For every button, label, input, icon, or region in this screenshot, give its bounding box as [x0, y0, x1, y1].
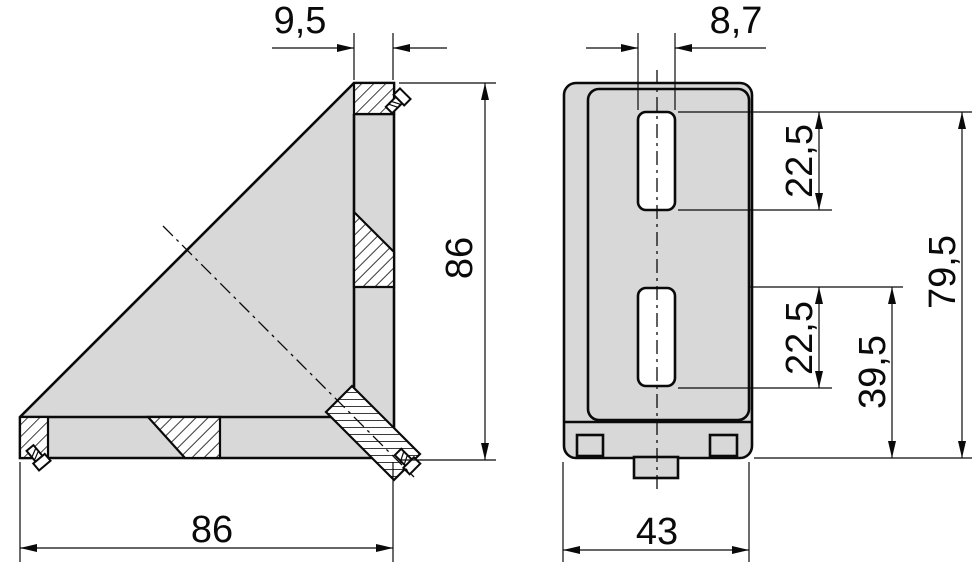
- arrowhead: [337, 44, 354, 52]
- arrowhead: [888, 287, 896, 304]
- dim-label-side-width: 86: [191, 509, 233, 551]
- arrowhead: [675, 44, 692, 52]
- dim-label-front-width: 43: [636, 511, 678, 553]
- dim-label-side-leg-thickness: 9,5: [274, 0, 327, 42]
- front-view: 8,7 22,5 22,5 39,5: [563, 0, 972, 562]
- arrowhead: [888, 441, 896, 458]
- arrowhead: [481, 83, 489, 100]
- arrowhead: [732, 546, 749, 554]
- dim-label-front-bottom-slot-length: 22,5: [779, 301, 821, 375]
- drawing-canvas: 9,5 86 86: [0, 0, 977, 566]
- arrowhead: [958, 112, 966, 129]
- arrowhead: [481, 443, 489, 460]
- arrowhead: [376, 544, 393, 552]
- dim-front-top-slot-to-base: 79,5: [922, 112, 966, 458]
- dim-label-front-slot-width: 8,7: [710, 0, 763, 42]
- bottom-tab: [634, 457, 678, 478]
- arrowhead: [393, 44, 410, 52]
- dim-side-leg-thickness: 9,5: [272, 0, 447, 80]
- arrowhead: [563, 546, 580, 554]
- dim-side-width: 86: [20, 462, 393, 562]
- dim-front-top-slot-length: 22,5: [779, 112, 823, 210]
- dim-front-bottom-slot-length: 22,5: [779, 287, 823, 388]
- arrowhead: [20, 544, 37, 552]
- technical-drawing: 9,5 86 86: [0, 0, 977, 566]
- dim-label-front-top-slot-length: 22,5: [779, 124, 821, 198]
- side-view: 9,5 86 86: [20, 0, 496, 562]
- dim-label-front-bottom-slot-to-base: 39,5: [852, 335, 894, 409]
- arrowhead: [958, 441, 966, 458]
- dim-label-front-top-slot-to-base: 79,5: [922, 235, 964, 309]
- dim-label-side-height: 86: [439, 237, 481, 279]
- arrowhead: [621, 44, 638, 52]
- dim-front-bottom-slot-to-base: 39,5: [852, 287, 896, 458]
- dim-side-height: 86: [399, 83, 496, 460]
